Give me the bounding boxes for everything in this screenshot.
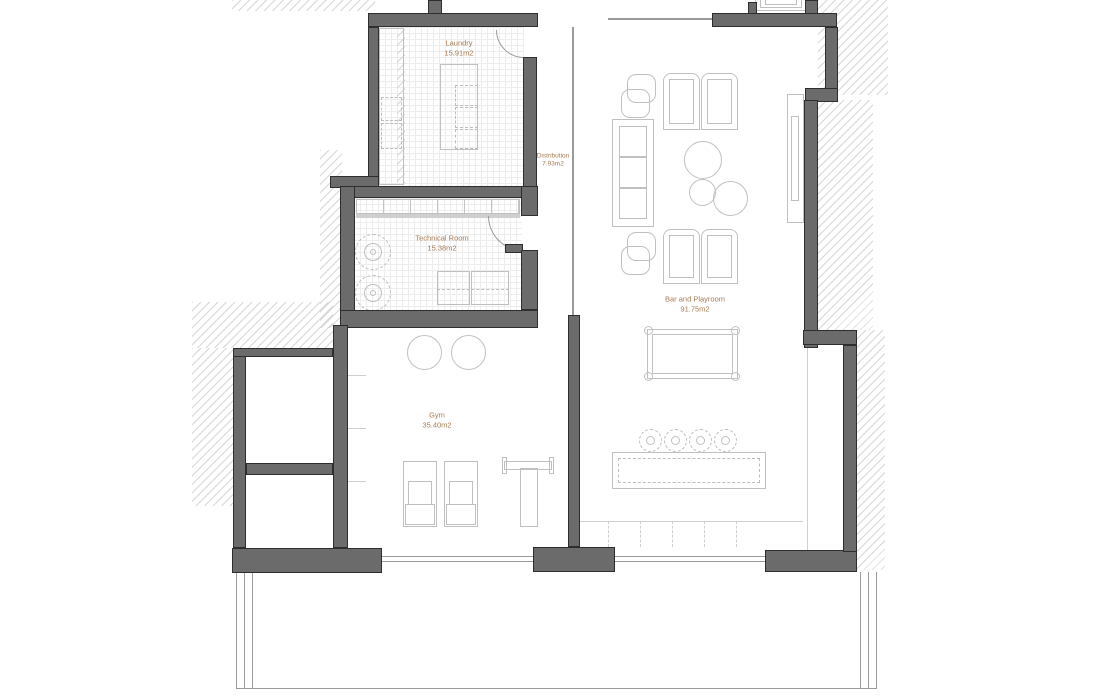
beam-line [608,18,712,20]
bar-counter-inner [618,458,760,483]
weight-bench-plate [549,457,554,474]
glass-door [615,561,765,562]
room-name: Technical Room [415,233,468,243]
wall-segment [523,57,537,188]
bar-stool-seat [696,436,705,445]
room-label-technical-room: Technical Room 15.38m2 [415,233,468,253]
floor-joint-tick [608,521,609,547]
laundry-island-unit [455,85,478,106]
glass-door [382,556,533,557]
wall-segment [533,547,615,572]
laundry-cabinet-unit [381,97,402,121]
wall-segment [333,325,348,548]
gym-lounger-back [449,481,473,505]
hatch-region [857,330,885,570]
room-name: Gym [422,410,451,420]
weight-bench-body [520,468,538,527]
room-label-distribution: Distribution 7.93m2 [537,153,570,170]
room-label-gym: Gym 35.40m2 [422,410,451,430]
terrace-edge [860,572,861,688]
coffee-table [689,179,716,206]
room-label-bar-playroom: Bar and Playroom 91.75m2 [665,294,725,314]
wall-shelf [346,428,366,429]
hatch-region [818,100,873,330]
gym-lounger-back [408,481,432,505]
sofa-cushion [619,126,647,157]
wall-segment [803,330,857,345]
pool-table-felt [652,334,733,374]
pool-pocket [644,326,653,335]
wall-shelf [346,481,366,482]
terrace-edge [244,573,245,688]
floor-joint-tick [736,521,737,547]
wall-segment [368,13,538,27]
wall-segment [233,348,246,548]
room-label-laundry: Laundry 15.91m2 [444,38,473,58]
gym-lounger-seat [405,504,435,525]
room-name: Distribution [537,153,570,161]
laundry-island-unit [455,129,478,149]
wall-segment [233,348,333,357]
terrace-edge [252,573,253,688]
wall-segment [232,548,382,573]
wall-segment [843,345,857,552]
pool-pocket [731,372,740,381]
gym-lounger-seat [446,504,476,525]
wall-segment [765,550,857,572]
wall-segment [354,186,538,198]
glass-door [615,556,765,557]
wall-segment [521,250,538,310]
pool-pocket [731,326,740,335]
floor-joint-tick [672,521,673,547]
room-area: 7.93m2 [537,161,570,169]
console-table-inner [791,116,799,201]
wall-segment [428,0,442,14]
wall-shelf [346,375,366,376]
stair-detail [765,0,797,5]
room-name: Bar and Playroom [665,294,725,304]
exercise-ball [407,335,442,370]
corridor-line [572,27,574,316]
terrace-edge [868,572,869,688]
bar-stool-seat [646,436,655,445]
wall-segment [748,2,757,14]
weight-bench-plate [502,457,507,474]
floor-joint-tick [640,521,641,547]
room-name: Laundry [444,38,473,48]
room-area: 91.75m2 [665,304,725,314]
armchair-seat [707,79,732,124]
wall-segment [340,310,538,328]
floor-joint-tick [704,521,705,547]
armchair-seat [669,79,694,124]
water-tank-valve [370,290,376,296]
floor-joint-line [578,521,803,522]
terrace-edge [236,688,877,689]
hatch-region [192,348,233,506]
room-area: 35.40m2 [422,420,451,430]
wall-segment [368,27,379,177]
technical-shelf-row [356,199,520,214]
laundry-island-unit [455,107,478,128]
terrace-edge [236,573,237,688]
coffee-table [684,141,722,179]
sofa-cushion [619,188,647,219]
sofa-cushion [619,157,647,188]
bar-stool-seat [671,436,680,445]
hatch-region [232,0,375,11]
glass-door [382,561,533,562]
coffee-table [713,181,748,216]
armchair-seat [669,235,694,278]
hatch-region [192,302,333,348]
appliance-clearance [437,289,509,305]
side-table [621,246,650,275]
wall-segment [712,13,837,27]
wall-segment [521,186,538,216]
floor-plan: Laundry 15.91m2 Distribution 7.93m2 Tech… [0,0,1120,700]
wall-segment [340,186,355,328]
wall-segment [805,0,818,14]
wall-segment [246,463,333,475]
lightwell-line [807,345,808,550]
exercise-ball [451,335,486,370]
laundry-cabinet-unit [381,123,402,149]
room-area: 15.38m2 [415,243,468,253]
wall-segment [568,315,580,547]
room-area: 15.91m2 [444,48,473,58]
pool-pocket [644,372,653,381]
bar-stool-seat [721,436,730,445]
wall-segment [825,27,838,90]
side-table [621,89,650,118]
armchair-seat [707,235,732,278]
wall-segment [804,100,818,348]
terrace-edge [876,572,877,688]
water-tank-valve [370,249,376,255]
